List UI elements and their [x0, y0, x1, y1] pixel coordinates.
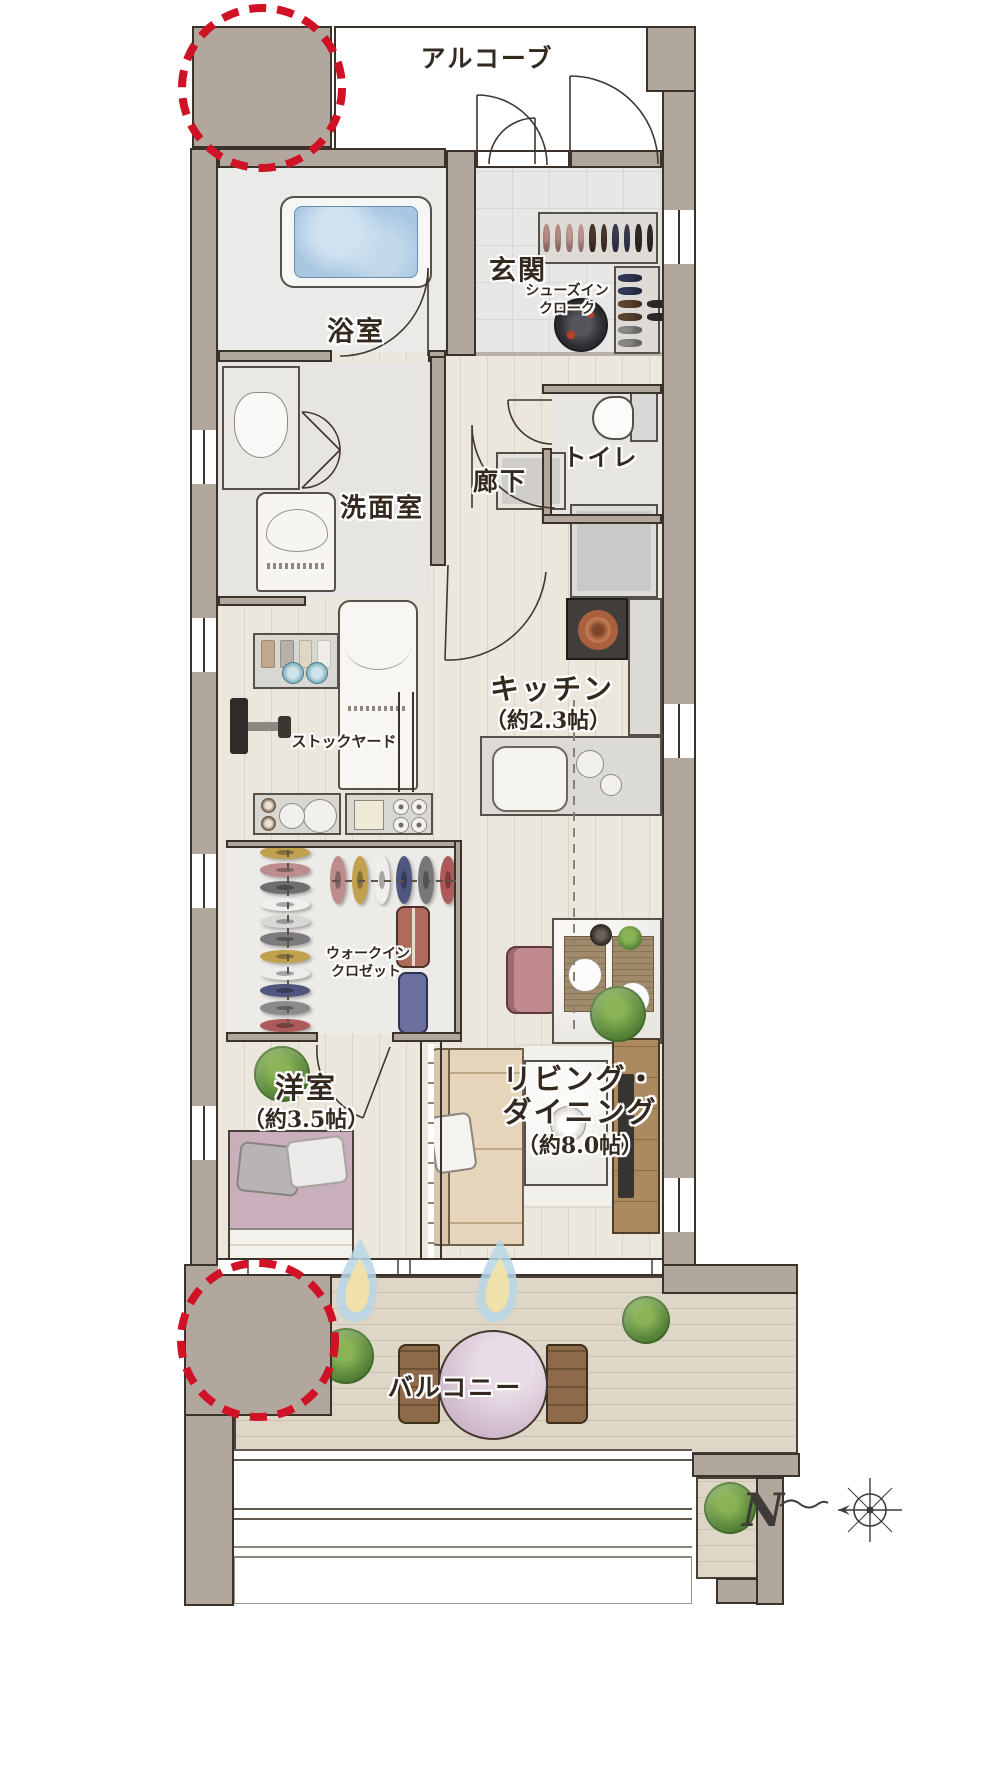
decor-item [601, 224, 608, 252]
plate [303, 799, 337, 833]
decor-item [618, 300, 642, 308]
toilet-bowl [592, 396, 634, 440]
sink-icon [492, 746, 568, 812]
window-slit [190, 618, 218, 672]
bathtub-water [294, 206, 418, 278]
vacuum-pole [248, 722, 280, 731]
shoe-rack-top [538, 212, 658, 264]
balcony-rail-lower [234, 1508, 692, 1520]
block-top-right [646, 26, 696, 92]
burner [393, 799, 409, 815]
toilet-top-wall [542, 384, 662, 394]
decor-item [260, 898, 310, 911]
black-bowl [590, 924, 612, 946]
plant-icon [704, 1482, 756, 1534]
bowl-teal [282, 662, 304, 684]
toilet-bottom-wall [542, 514, 662, 524]
decor-item [618, 339, 642, 347]
window-slit [190, 854, 218, 908]
decor-item [624, 224, 631, 252]
balcony-right-bar [756, 1477, 784, 1605]
top-wall-bath [218, 148, 446, 168]
genkan-left-wall [446, 150, 476, 356]
window-slit [190, 1106, 218, 1160]
window-slit [190, 430, 218, 484]
label-living-dining-2: ダイニング [502, 1089, 657, 1131]
label-balcony: バルコニー [388, 1368, 523, 1404]
window-slit [662, 210, 696, 264]
decor-item [260, 950, 310, 963]
burner [411, 799, 427, 815]
dinner-plate [568, 958, 602, 992]
kitchen-pocket-door [398, 692, 414, 792]
label-alcove: アルコーブ [421, 39, 554, 75]
decor-item [261, 640, 275, 668]
decor-item [260, 967, 310, 980]
decor-item [374, 856, 390, 904]
decor-item [260, 984, 310, 997]
stove-coil [578, 610, 618, 650]
bath-washroom-wall [218, 350, 332, 362]
vanity-bowl [234, 392, 288, 458]
closet-bottom-wall-b [392, 1032, 462, 1042]
closet-hanging-clothes-row [330, 856, 462, 908]
plant-icon [590, 986, 646, 1042]
shoe-rack-right [614, 266, 660, 354]
toilet-tank [630, 390, 658, 442]
closet-bottom-wall-a [226, 1032, 318, 1042]
balcony-window-strip [218, 1258, 662, 1276]
cutting-board [354, 800, 384, 830]
right-wall [662, 90, 696, 1270]
label-kitchen-size: （約2.3帖） [485, 703, 611, 735]
balcony-band-bottom-right [692, 1453, 800, 1477]
supply-bowls [282, 662, 326, 684]
label-living-dining-size: （約8.0帖） [517, 1128, 643, 1160]
bed-icon [228, 1130, 354, 1268]
burner [411, 817, 427, 833]
label-hallway: 廊下 [473, 462, 527, 498]
decor-item [647, 224, 654, 252]
decor-item [396, 856, 412, 904]
decor-item [578, 224, 585, 252]
stove-icon [566, 598, 628, 660]
decor-item [635, 224, 642, 252]
decor-item [330, 856, 346, 904]
label-western-room-size: （約3.5帖） [243, 1102, 369, 1134]
balcony-chair-icon [546, 1344, 588, 1424]
lower-floor-outline [234, 1546, 692, 1558]
decor-item [555, 224, 562, 252]
label-shoes-in-closet-2: クローク [539, 298, 595, 318]
kitchen-counter-strip [628, 598, 662, 736]
decor-item [612, 224, 619, 252]
bedroom-sliding-door [420, 1042, 442, 1262]
decor-item [618, 313, 642, 321]
window-slit [662, 704, 696, 758]
closet-right-wall [454, 840, 462, 1040]
kitchen-counter-right [345, 793, 433, 835]
bowl-brown [261, 798, 276, 813]
washroom-right-wall [430, 356, 446, 566]
compass-squiggle [780, 1500, 828, 1507]
label-washroom: 洗面室 [340, 488, 424, 525]
washroom-bottom-wall [218, 596, 306, 606]
plate [600, 774, 622, 796]
label-walk-in-closet-1: ウォークイン [326, 943, 410, 963]
decor-item [418, 856, 434, 904]
suitcase-icon [398, 972, 428, 1034]
decor-item [618, 274, 642, 282]
label-walk-in-closet-2: クロゼット [331, 961, 401, 981]
plant-icon [622, 1296, 670, 1344]
label-stockyard: ストックヤード [291, 731, 396, 752]
label-western-room: 洋室 [275, 1065, 337, 1107]
pillar-bottom-left [184, 1264, 332, 1416]
entry-doorway [476, 150, 570, 168]
left-wall [190, 148, 218, 1270]
washer-vents [267, 563, 325, 569]
compass-rose [838, 1478, 902, 1542]
toilet-left-wall [542, 448, 552, 524]
decor-item [260, 1001, 310, 1014]
closet-top-wall [226, 840, 462, 848]
decor-item [260, 863, 310, 876]
vacuum-handle [230, 698, 248, 754]
fridge-curve [345, 621, 412, 670]
burner [393, 817, 409, 833]
label-kitchen: キッチン [490, 666, 614, 708]
decor-item [260, 915, 310, 928]
bed-pillow [285, 1135, 348, 1190]
closet-hanging-clothes-column [260, 846, 316, 1032]
table-plant [618, 926, 642, 950]
decor-item [618, 287, 642, 295]
decor-item [260, 1019, 310, 1032]
lower-floor-band [234, 1558, 692, 1604]
balcony-rail [234, 1449, 692, 1461]
window-slit [662, 1178, 696, 1232]
top-wall-right [570, 150, 662, 168]
washer-door [266, 509, 329, 551]
decor-item [589, 224, 596, 252]
bowl-teal [306, 662, 328, 684]
vacuum-cleaner-icon [228, 696, 292, 758]
label-bathroom: 浴室 [327, 310, 385, 349]
dining-chair-icon [506, 946, 554, 1014]
balcony-left-column [184, 1414, 234, 1606]
plate [279, 803, 305, 829]
washing-machine-icon [256, 492, 336, 592]
floor-plan: N アルコーブ 玄関 シューズイン クローク 浴室 洗面室 廊下 トイレ キッチ… [0, 0, 1000, 1780]
vacuum-head [278, 716, 291, 738]
label-toilet: トイレ [563, 438, 638, 473]
balcony-corner-block [716, 1578, 758, 1604]
plate [576, 750, 604, 778]
decor-item [352, 856, 368, 904]
label-shoes-in-closet-1: シューズイン [525, 280, 608, 300]
balcony-band-top-right [662, 1264, 798, 1294]
decor-item [566, 224, 573, 252]
pillar-top-left [192, 26, 332, 148]
kitchen-island [480, 736, 662, 816]
bowl-brown [261, 816, 276, 831]
decor-item [260, 932, 310, 945]
decor-item [618, 326, 642, 334]
kitchen-counter-left [253, 793, 341, 835]
decor-item [260, 881, 310, 894]
